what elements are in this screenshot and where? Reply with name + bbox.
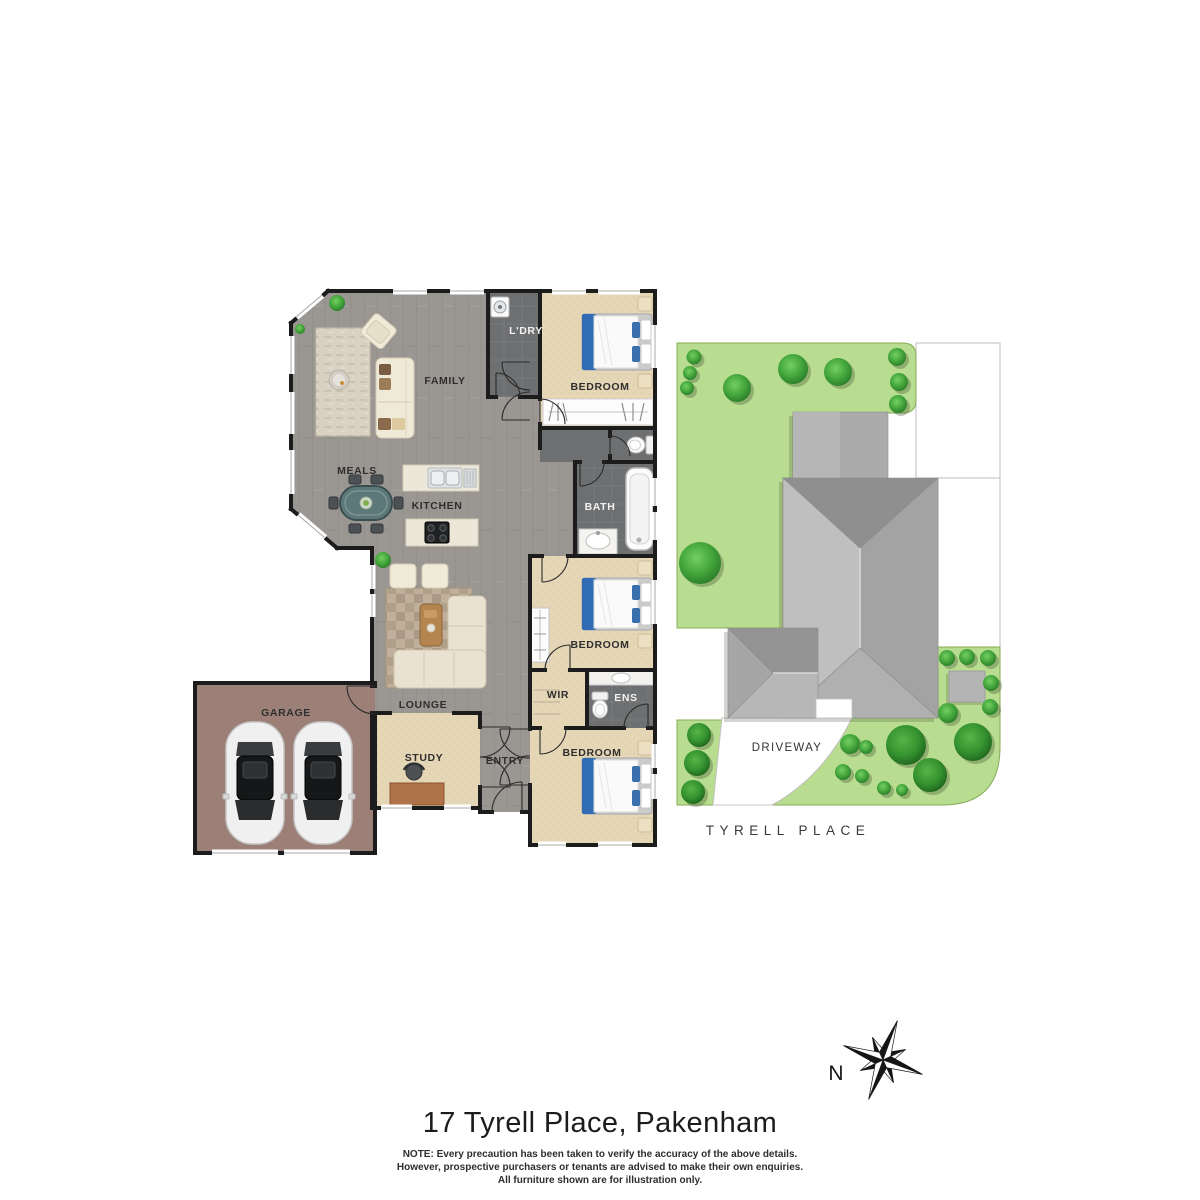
room-label-kitchen: KITCHEN xyxy=(412,500,463,512)
room-label-garage: GARAGE xyxy=(261,707,311,719)
room-label-bedroom-top: BEDROOM xyxy=(570,381,629,393)
disclaimer-line: However, prospective purchasers or tenan… xyxy=(0,1161,1200,1174)
room-label-family: FAMILY xyxy=(424,375,465,387)
bathtub xyxy=(626,468,653,550)
room-label-bedroom-mid: BEDROOM xyxy=(570,639,629,651)
indoor-plant-icon xyxy=(329,295,345,311)
floor-plan: FAMILY MEALS KITCHEN L'DRY BEDROOM BATH … xyxy=(195,291,655,853)
disclaimer-line: NOTE: Every precaution has been taken to… xyxy=(0,1148,1200,1161)
compass-rose: N xyxy=(828,1006,936,1114)
bath-vanity xyxy=(579,529,617,554)
car xyxy=(291,722,355,844)
room-label-bath: BATH xyxy=(585,501,616,513)
site-boundary-north-east xyxy=(916,343,1000,478)
lounge-armchair xyxy=(390,564,416,588)
built-in-robe xyxy=(543,399,653,425)
room-label-study: STUDY xyxy=(405,752,444,764)
ens-toilet xyxy=(592,692,608,718)
page-title: 17 Tyrell Place, Pakenham xyxy=(0,1107,1200,1140)
room-label-laundry: L'DRY xyxy=(509,325,543,337)
indoor-plant-icon xyxy=(375,552,391,568)
porch-notch xyxy=(816,699,852,718)
site-plan: DRIVEWAY TYRELL PLACE xyxy=(677,343,1002,838)
washing-machine-icon xyxy=(491,297,509,317)
hall-robe xyxy=(531,608,549,662)
street-label: TYRELL PLACE xyxy=(706,823,871,838)
room-label-wir: WIR xyxy=(547,689,569,701)
wc-toilet xyxy=(627,436,654,454)
room-label-bedroom-bottom: BEDROOM xyxy=(562,747,621,759)
family-side-table xyxy=(329,370,349,390)
coffee-table xyxy=(420,604,442,646)
floorplan-page: DRIVEWAY TYRELL PLACE xyxy=(0,0,1200,1200)
disclaimer-note: NOTE: Every precaution has been taken to… xyxy=(0,1148,1200,1187)
site-boundary-east xyxy=(938,478,1000,647)
car xyxy=(223,722,287,844)
room-label-lounge: LOUNGE xyxy=(399,699,448,711)
kitchen-island-cooktop xyxy=(406,519,478,546)
lounge-armchair xyxy=(422,564,448,588)
family-sofa xyxy=(376,358,414,438)
room-label-meals: MEALS xyxy=(337,465,377,477)
room-label-entry: ENTRY xyxy=(486,755,524,767)
disclaimer-line: All furniture shown are for illustration… xyxy=(0,1174,1200,1187)
kitchen-island-sink xyxy=(403,465,479,491)
compass-north-label: N xyxy=(828,1062,843,1085)
ens-vanity xyxy=(589,671,653,685)
plan-graphic: DRIVEWAY TYRELL PLACE xyxy=(0,0,1200,1200)
driveway-label: DRIVEWAY xyxy=(752,742,822,754)
indoor-plant-icon xyxy=(295,324,305,334)
shed xyxy=(949,671,985,702)
room-label-ens: ENS xyxy=(614,692,637,704)
